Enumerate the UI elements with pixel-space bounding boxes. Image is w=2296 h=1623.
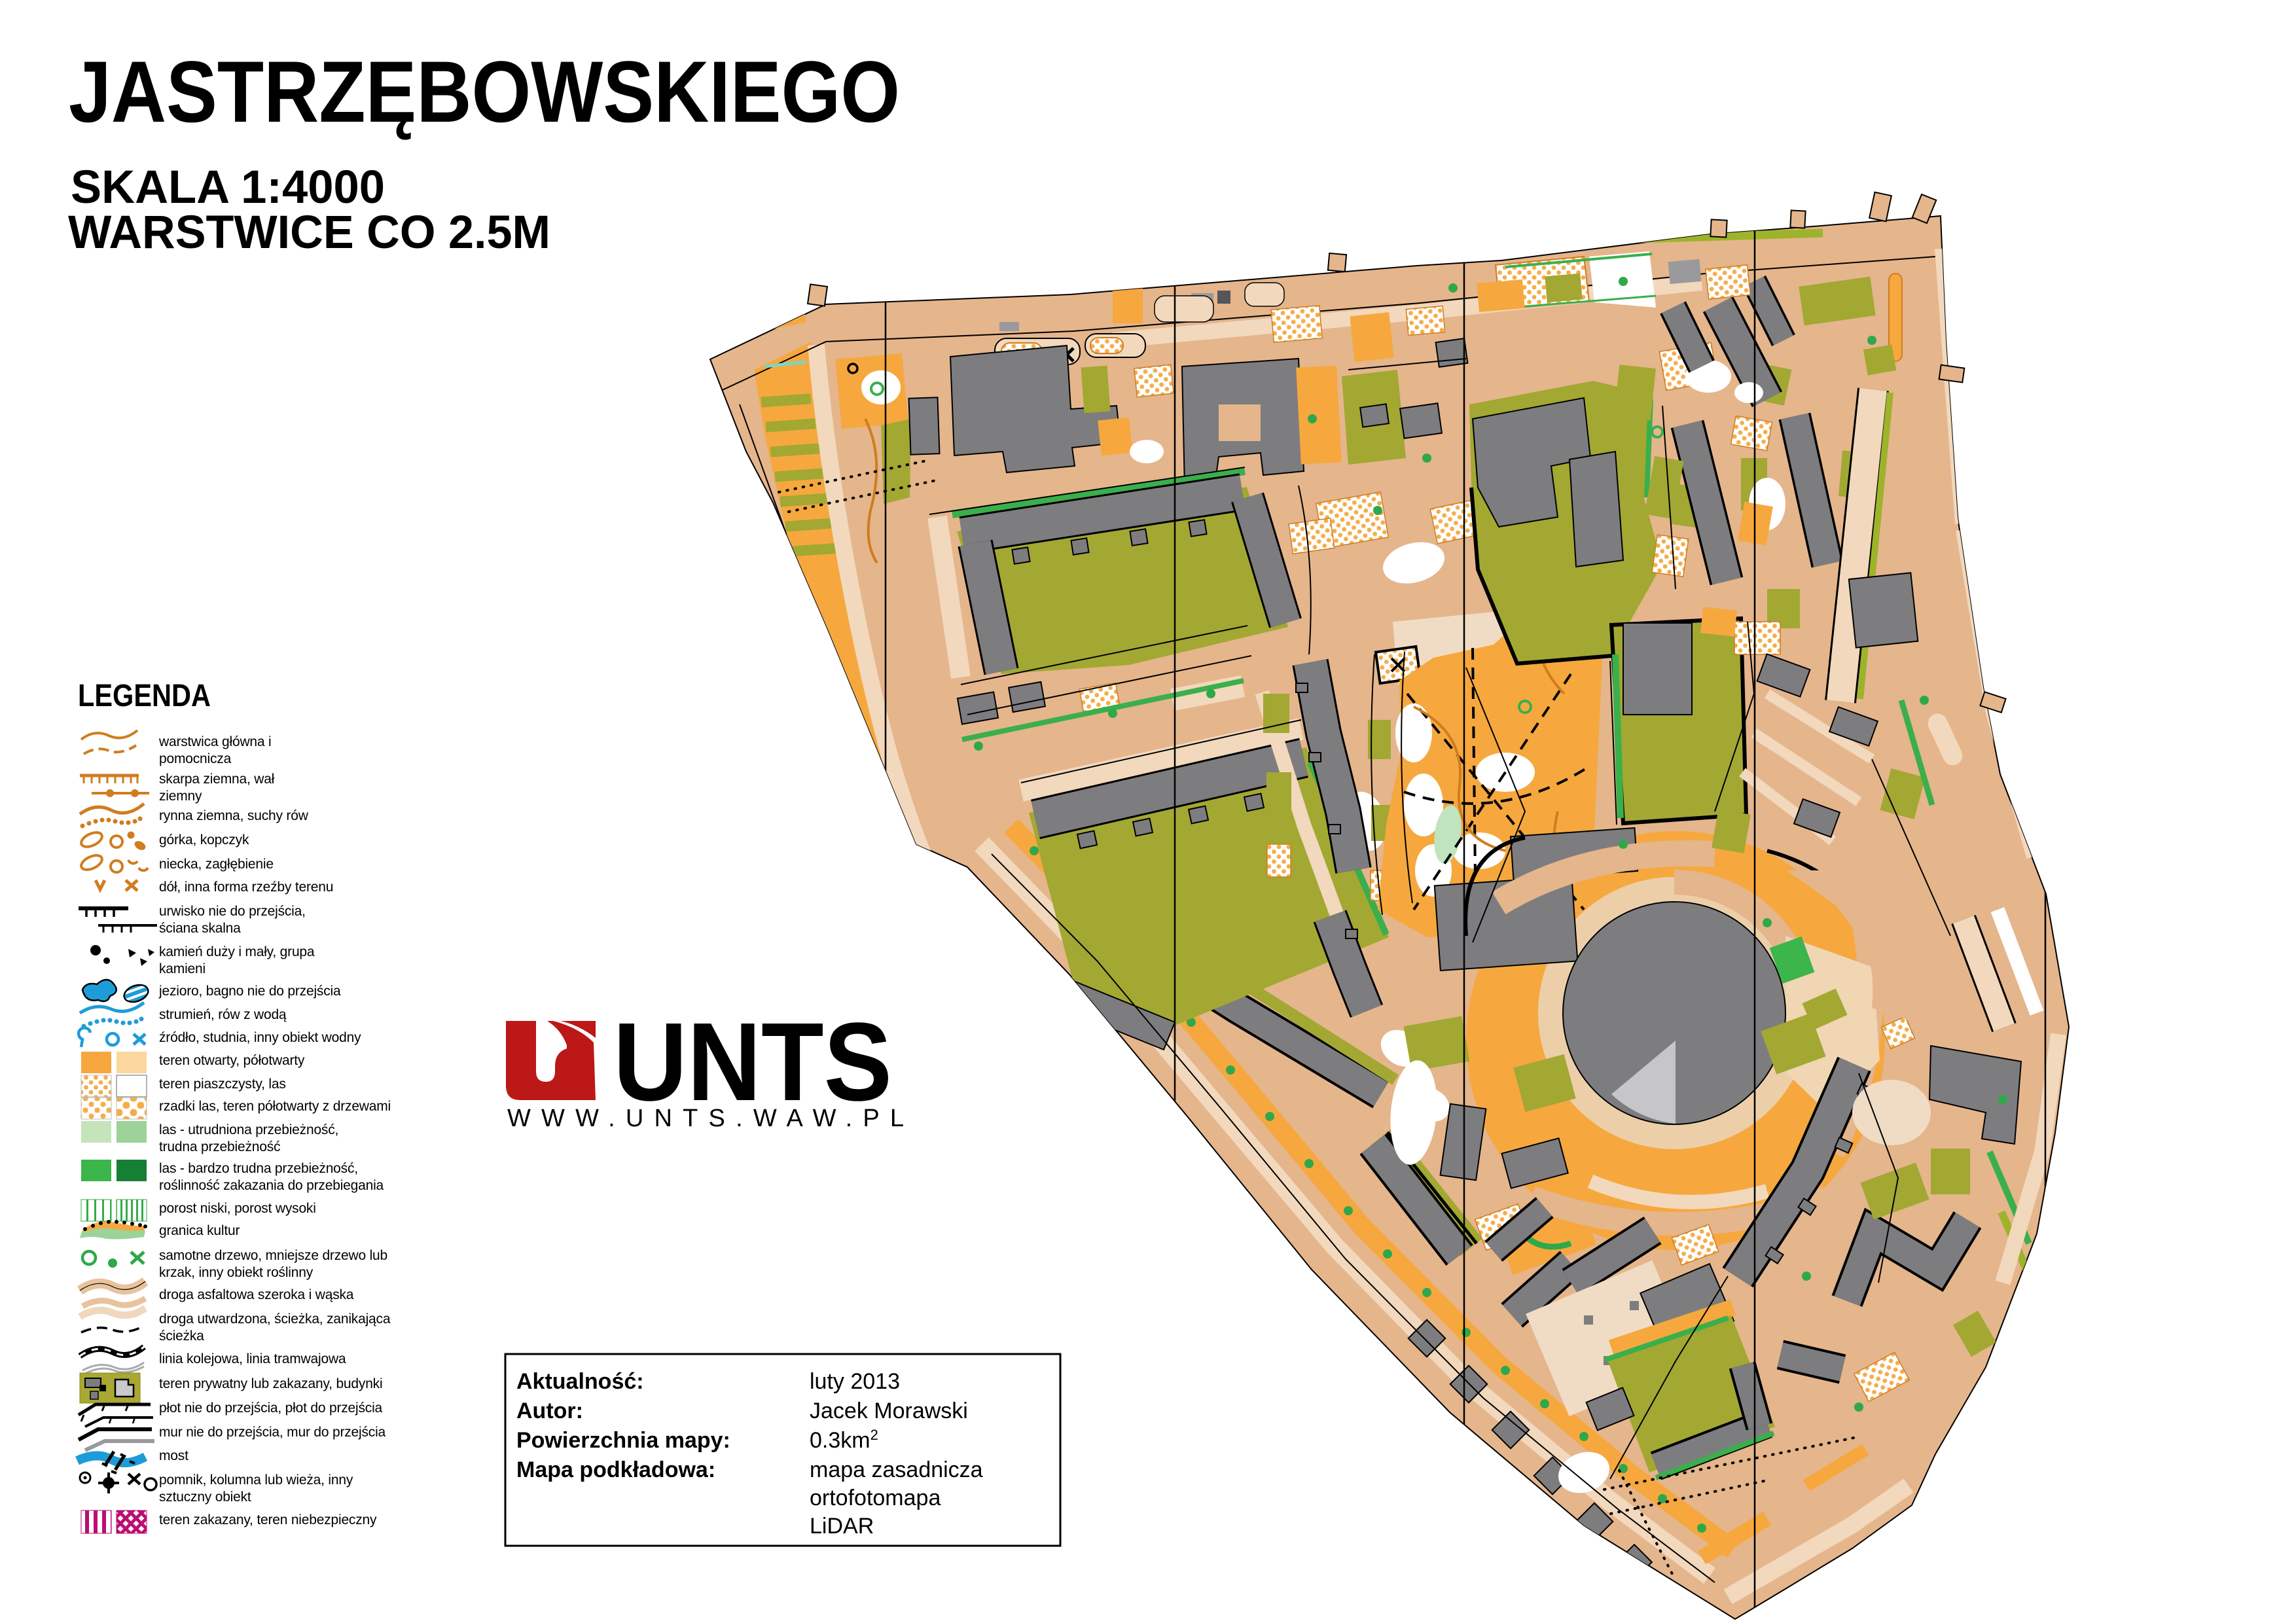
svg-text:jezioro, bagno nie do przejści: jezioro, bagno nie do przejścia — [158, 984, 341, 999]
svg-text:mur nie do przejścia, mur do p: mur nie do przejścia, mur do przejścia — [159, 1425, 386, 1440]
svg-text:LEGENDA: LEGENDA — [78, 679, 211, 713]
svg-text:LiDAR: LiDAR — [810, 1514, 874, 1539]
svg-text:porost niski, porost wysoki: porost niski, porost wysoki — [159, 1201, 316, 1216]
svg-text:ściana skalna: ściana skalna — [159, 921, 241, 936]
svg-text:rynna ziemna, suchy rów: rynna ziemna, suchy rów — [159, 808, 309, 823]
svg-text:Powierzchnia mapy:: Powierzchnia mapy: — [516, 1428, 730, 1453]
svg-text:Mapa podkładowa:: Mapa podkładowa: — [516, 1457, 715, 1482]
svg-text:kamień duży i mały, grupa: kamień duży i mały, grupa — [159, 944, 315, 959]
svg-text:las - bardzo trudna przebieżno: las - bardzo trudna przebieżność, — [159, 1161, 358, 1176]
svg-text:Jacek Morawski: Jacek Morawski — [810, 1399, 968, 1423]
svg-text:linia kolejowa, linia tramwajo: linia kolejowa, linia tramwajowa — [159, 1351, 346, 1366]
svg-text:luty 2013: luty 2013 — [810, 1369, 900, 1394]
svg-text:las - utrudniona przebieżność,: las - utrudniona przebieżność, — [159, 1122, 338, 1137]
svg-text:ortofotomapa: ortofotomapa — [810, 1486, 941, 1510]
svg-text:granica kultur: granica kultur — [159, 1223, 240, 1238]
svg-text:most: most — [159, 1448, 188, 1463]
svg-text:teren otwarty, półotwarty: teren otwarty, półotwarty — [159, 1053, 305, 1068]
svg-text:teren zakazany, teren niebezpi: teren zakazany, teren niebezpieczny — [159, 1512, 377, 1527]
svg-text:rzadki las, teren półotwarty z: rzadki las, teren półotwarty z drzewami — [159, 1099, 391, 1114]
svg-text:skarpa ziemna, wał: skarpa ziemna, wał — [159, 772, 275, 787]
svg-text:krzak, inny obiekt roślinny: krzak, inny obiekt roślinny — [159, 1265, 314, 1280]
svg-text:mapa zasadnicza: mapa zasadnicza — [810, 1457, 983, 1482]
svg-text:sztuczny obiekt: sztuczny obiekt — [159, 1489, 251, 1505]
svg-text:JASTRZĘBOWSKIEGO: JASTRZĘBOWSKIEGO — [69, 44, 900, 141]
svg-text:roślinność zakazania do przebi: roślinność zakazania do przebiegania — [159, 1178, 384, 1193]
svg-text:SKALA 1:4000: SKALA 1:4000 — [71, 162, 385, 213]
svg-text:źródło, studnia, inny obiekt w: źródło, studnia, inny obiekt wodny — [159, 1030, 361, 1045]
svg-text:płot nie do przejścia, płot do: płot nie do przejścia, płot do przejścia — [159, 1400, 383, 1416]
svg-text:pomocnicza: pomocnicza — [159, 751, 232, 766]
svg-text:trudna przebieżność: trudna przebieżność — [159, 1139, 280, 1154]
svg-text:Autor:: Autor: — [516, 1399, 583, 1423]
svg-text:ścieżka: ścieżka — [159, 1329, 204, 1344]
svg-text:kamieni: kamieni — [159, 961, 206, 976]
svg-text:dół, inna forma rzeźby terenu: dół, inna forma rzeźby terenu — [159, 880, 333, 895]
svg-text:WARSTWICE CO 2.5M: WARSTWICE CO 2.5M — [68, 207, 550, 259]
svg-text:droga utwardzona, ścieżka, zan: droga utwardzona, ścieżka, zanikająca — [159, 1311, 391, 1327]
svg-text:Aktualność:: Aktualność: — [516, 1369, 644, 1394]
svg-text:ziemny: ziemny — [159, 789, 202, 804]
svg-text:teren piaszczysty, las: teren piaszczysty, las — [159, 1077, 286, 1092]
svg-text:pomnik, kolumna lub wieża, inn: pomnik, kolumna lub wieża, inny — [159, 1472, 353, 1488]
svg-text:droga asfaltowa szeroka i wąsk: droga asfaltowa szeroka i wąska — [159, 1287, 354, 1302]
svg-text:samotne drzewo, mniejsze drzew: samotne drzewo, mniejsze drzewo lub — [159, 1248, 387, 1263]
svg-text:górka, kopczyk: górka, kopczyk — [159, 832, 249, 847]
svg-text:0.3km2: 0.3km2 — [810, 1427, 878, 1453]
svg-text:urwisko nie do przejścia,: urwisko nie do przejścia, — [159, 904, 306, 919]
svg-text:strumień, rów z wodą: strumień, rów z wodą — [159, 1007, 287, 1022]
svg-text:teren prywatny lub zakazany, b: teren prywatny lub zakazany, budynki — [159, 1376, 382, 1391]
svg-text:niecka, zagłębienie: niecka, zagłębienie — [159, 857, 274, 872]
svg-text:warstwica główna i: warstwica główna i — [158, 734, 271, 749]
